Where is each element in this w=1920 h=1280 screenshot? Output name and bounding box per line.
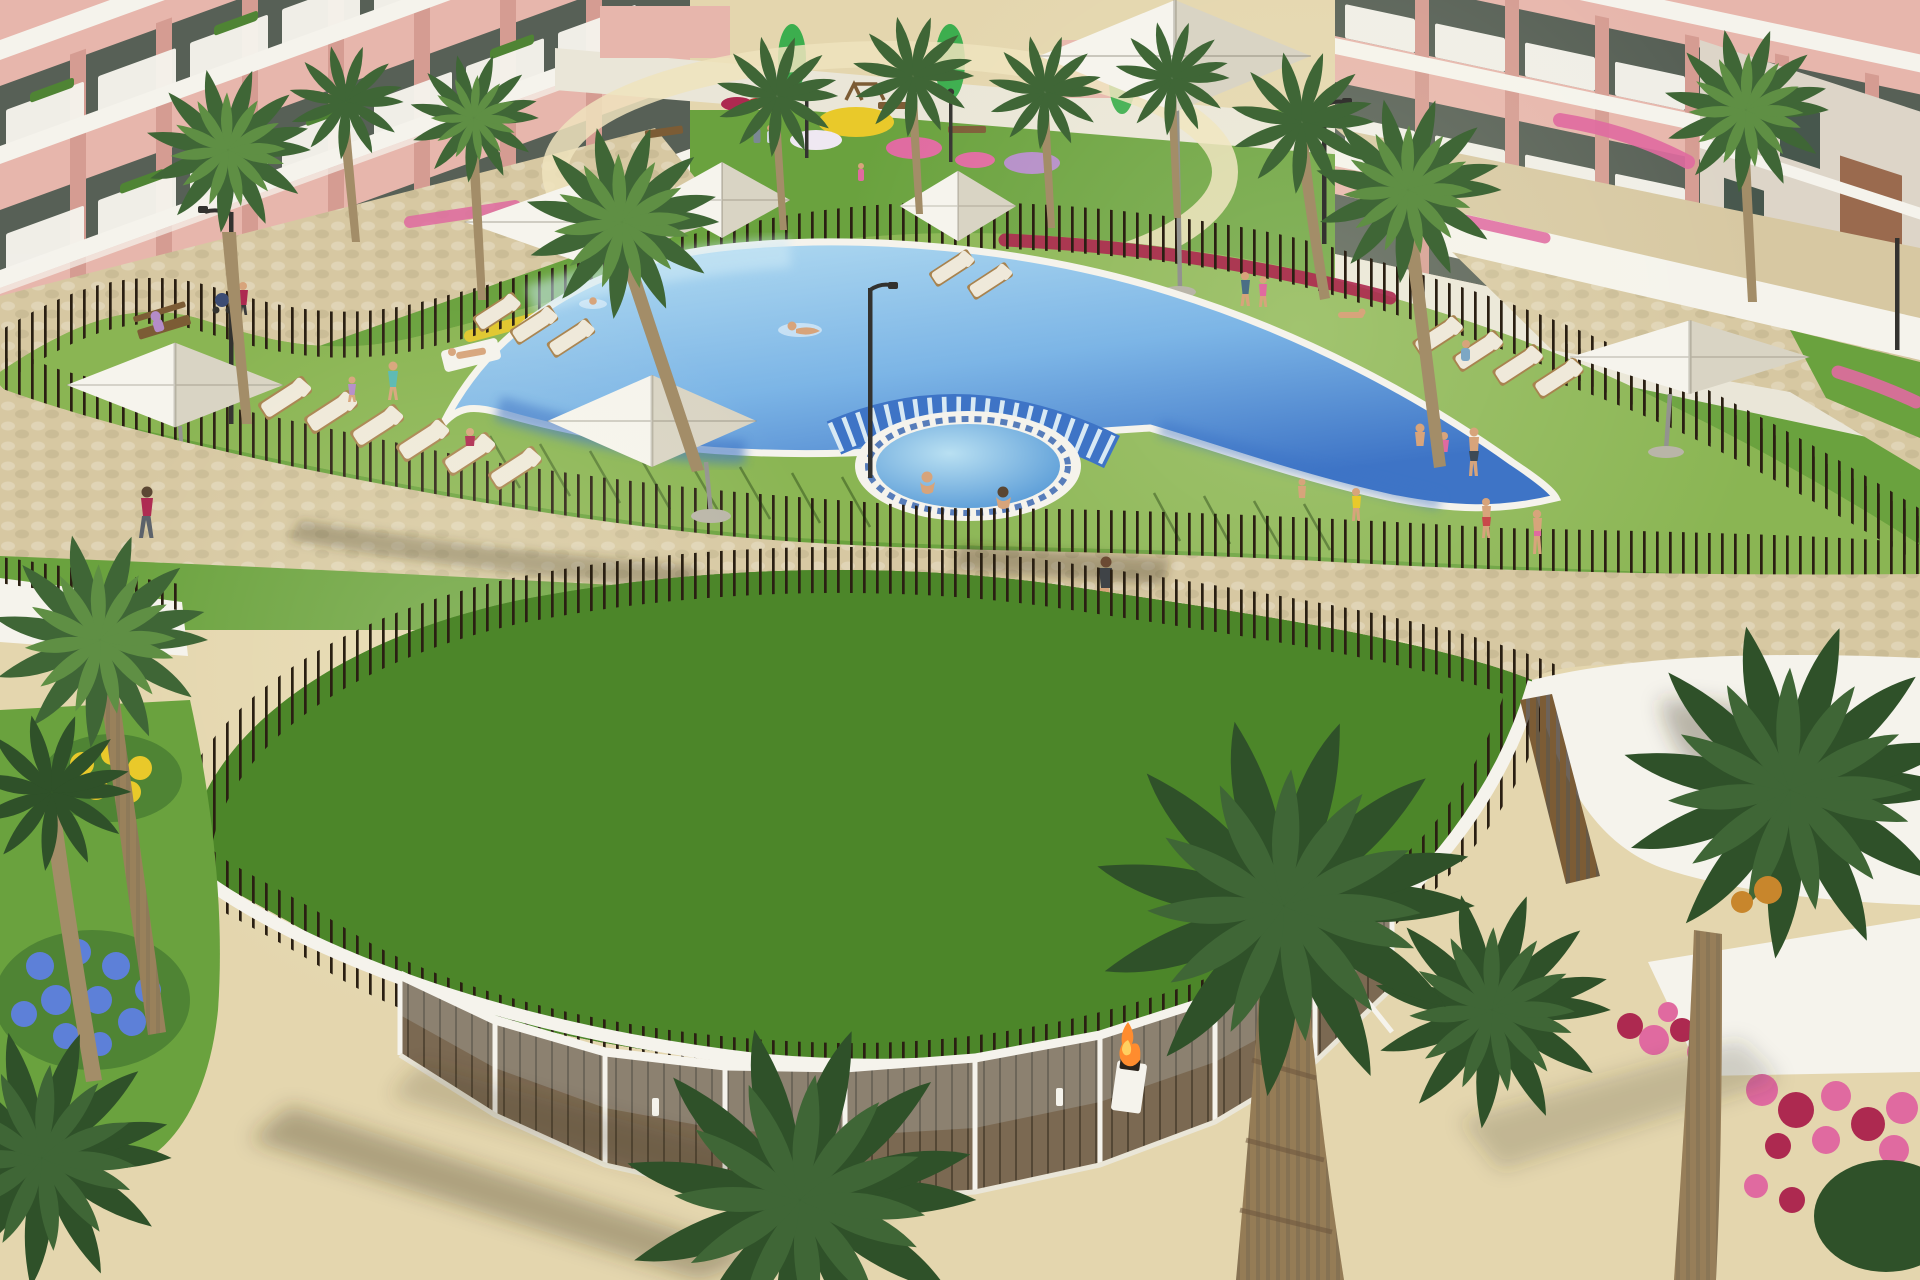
street-lamp [1895, 238, 1900, 350]
rendering-canvas [0, 0, 1920, 1280]
resort-aerial-rendering [0, 0, 1920, 1280]
date-cluster [1754, 876, 1782, 904]
door-handle[interactable] [652, 1098, 659, 1116]
door-handle[interactable] [1056, 1088, 1063, 1106]
date-cluster [1731, 891, 1753, 913]
